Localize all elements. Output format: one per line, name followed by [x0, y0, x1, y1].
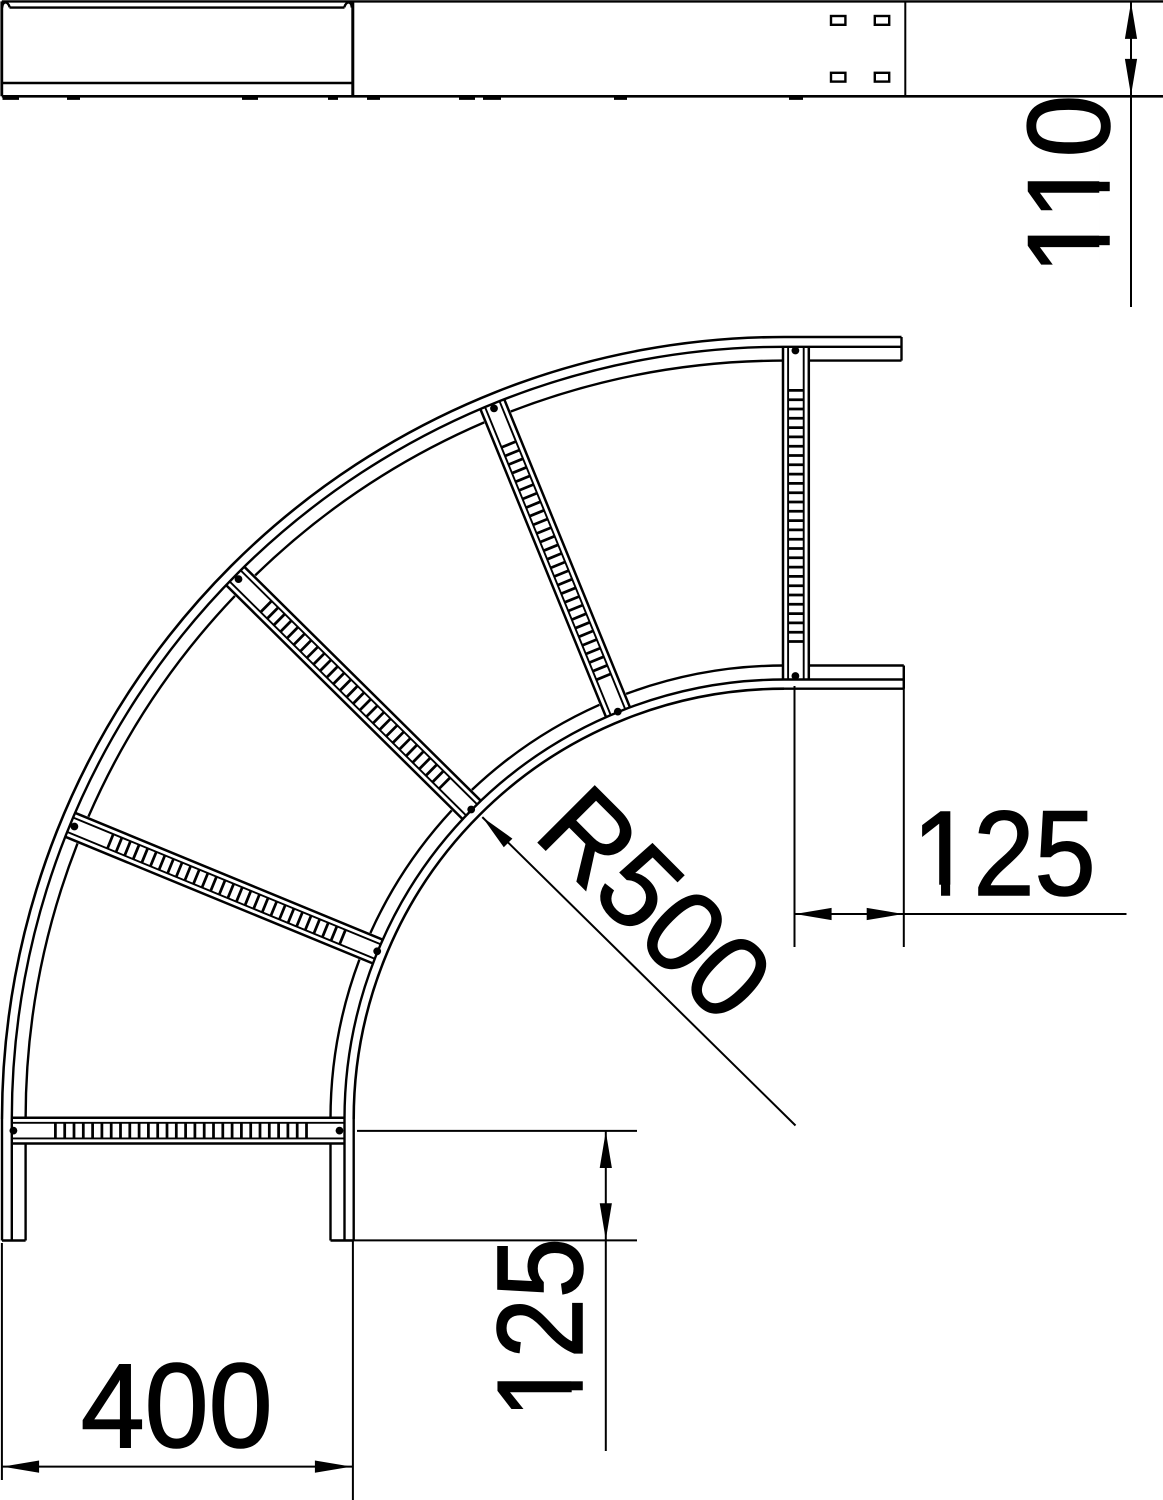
svg-text:125: 125 [473, 1238, 608, 1419]
svg-text:110: 110 [1005, 95, 1135, 275]
svg-text:125: 125 [912, 785, 1096, 921]
svg-text:R500: R500 [514, 762, 797, 1045]
svg-text:400: 400 [81, 1339, 273, 1473]
